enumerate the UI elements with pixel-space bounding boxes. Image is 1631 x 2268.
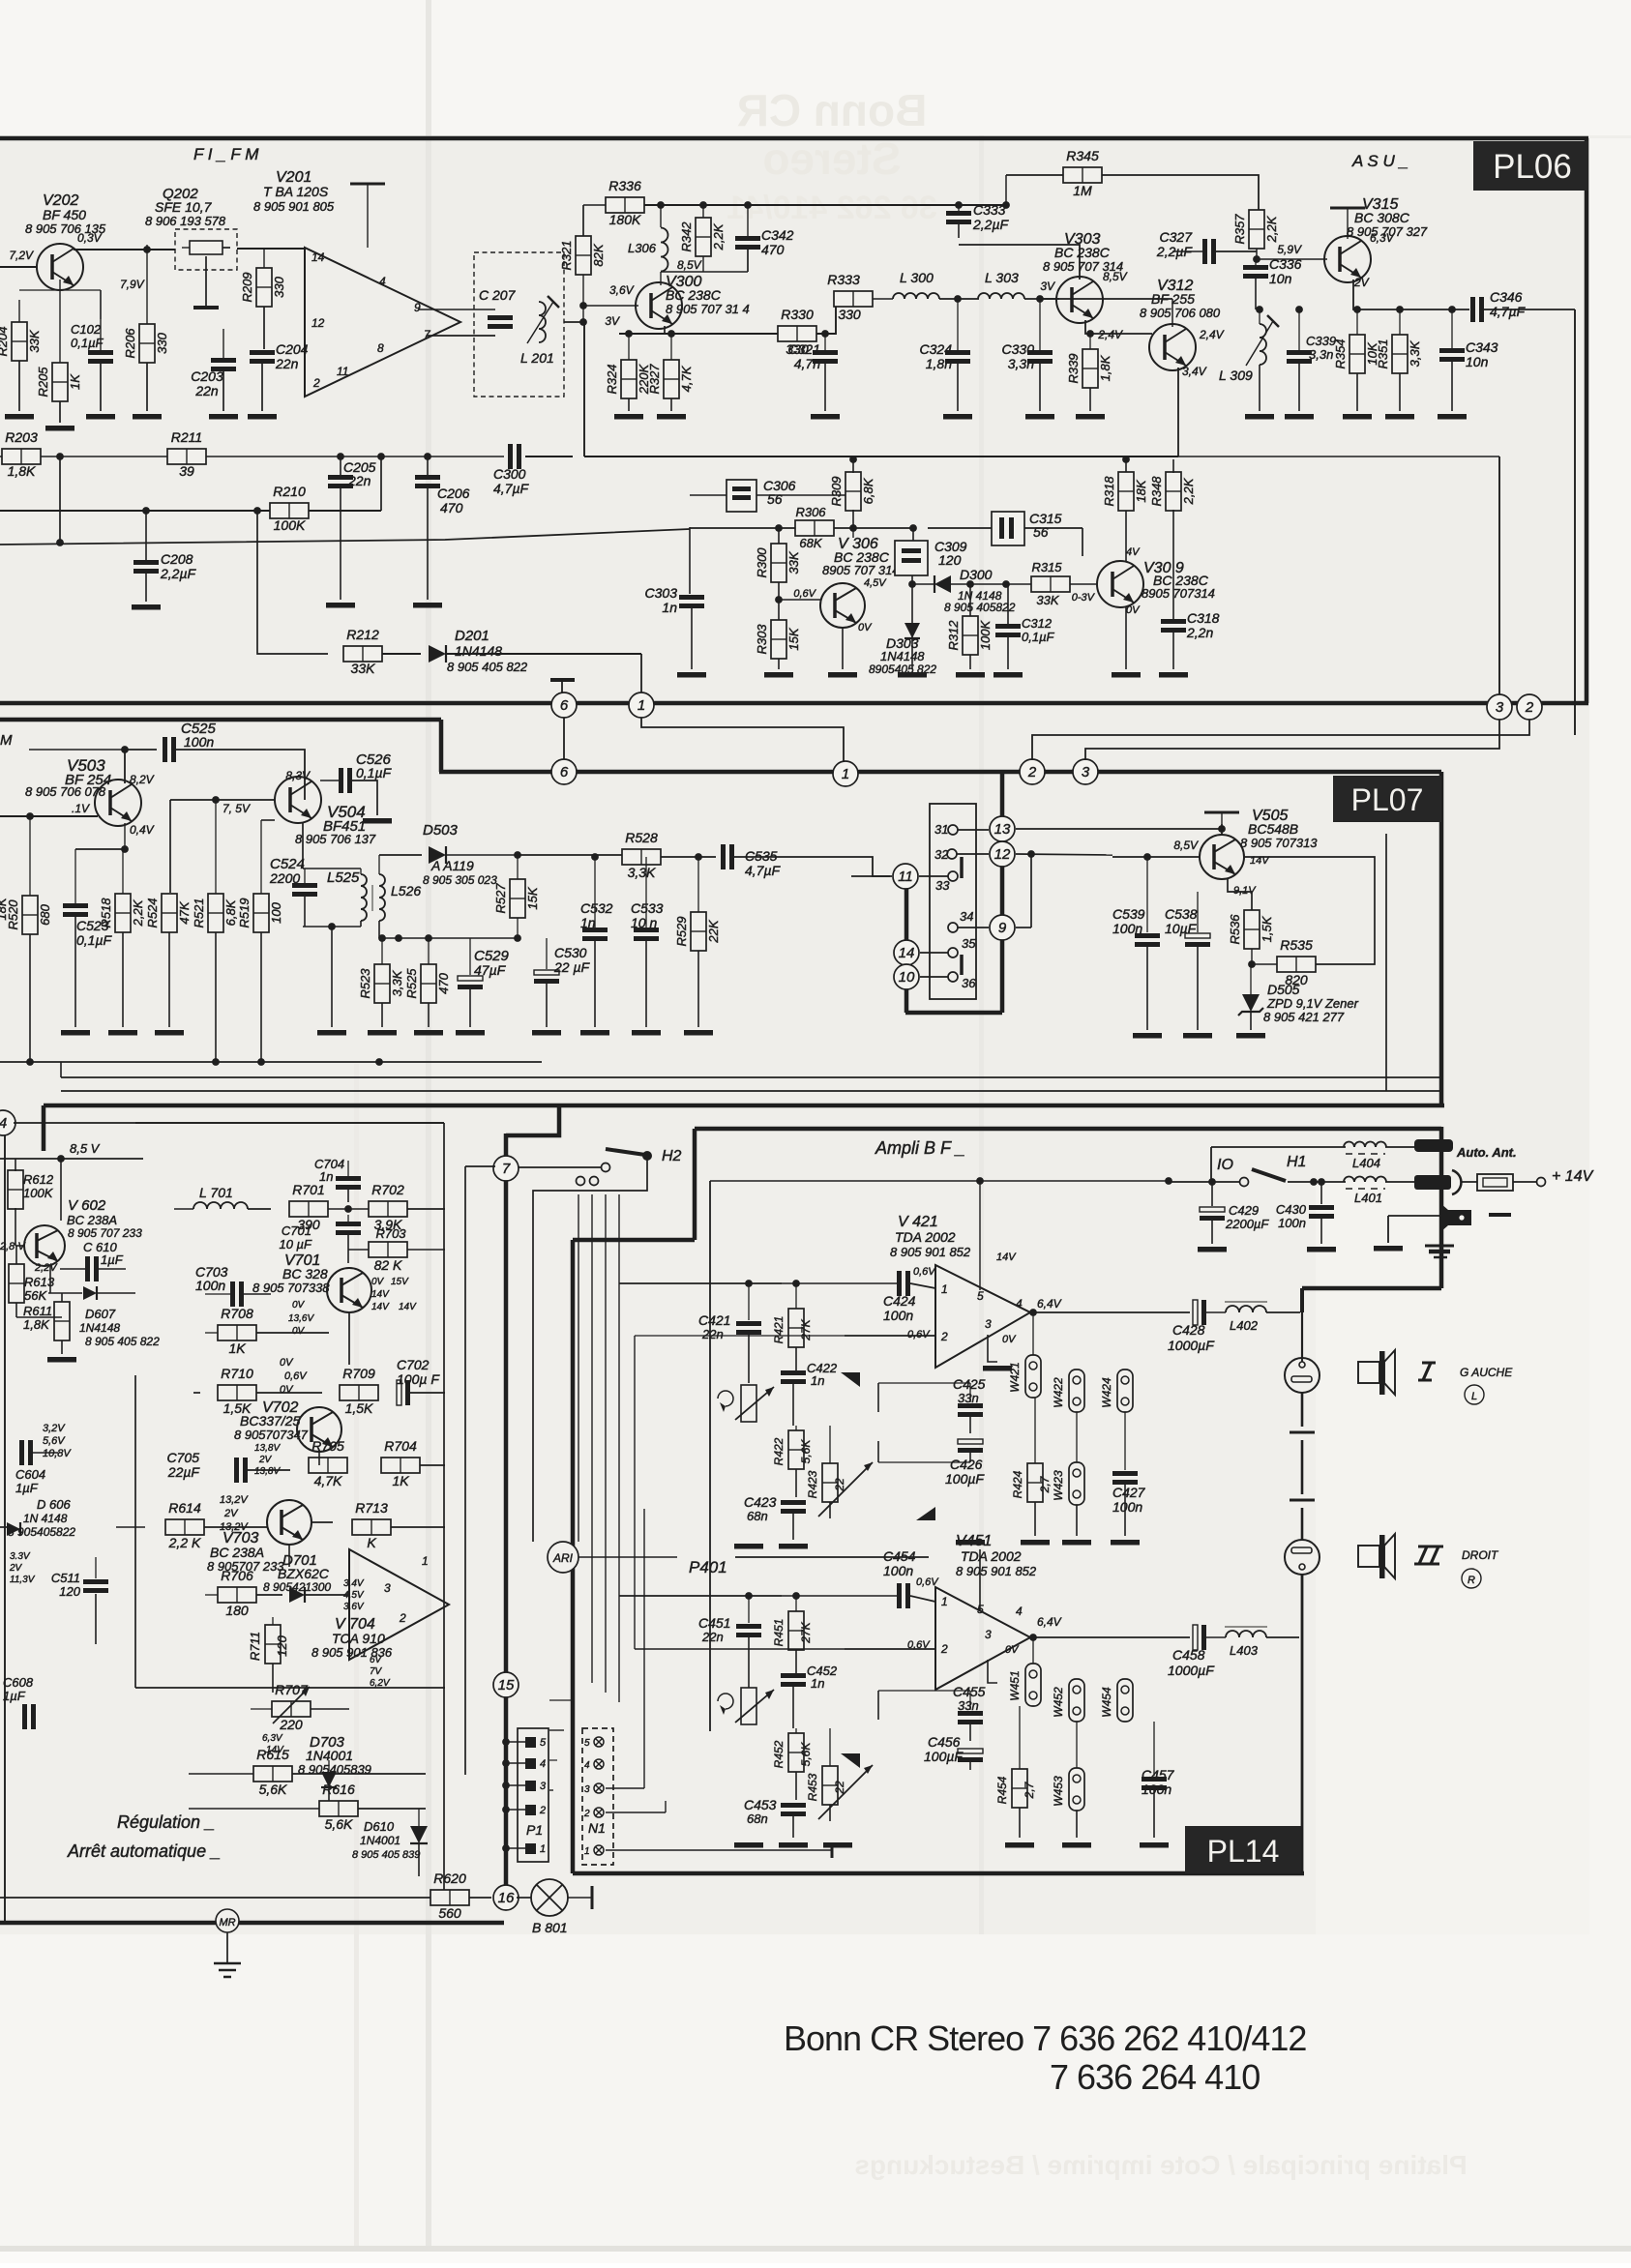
svg-text:C538: C538 — [1165, 906, 1198, 922]
svg-text:330: 330 — [155, 332, 169, 353]
svg-text:1: 1 — [540, 1843, 546, 1855]
svg-text:2,7: 2,7 — [1038, 1475, 1052, 1493]
svg-text:33n: 33n — [958, 1391, 979, 1405]
svg-text:C330: C330 — [1002, 341, 1035, 357]
svg-text:R204: R204 — [0, 326, 10, 356]
svg-text:1,8K: 1,8K — [23, 1317, 50, 1332]
svg-text:R536: R536 — [1228, 914, 1242, 945]
svg-text:C208: C208 — [161, 551, 193, 567]
svg-text:0V: 0V — [292, 1300, 306, 1311]
svg-text:33K: 33K — [27, 329, 42, 352]
svg-text:IO: IO — [1217, 1157, 1233, 1173]
svg-text:2: 2 — [940, 1330, 948, 1343]
svg-text:9,1V: 9,1V — [1233, 885, 1257, 897]
svg-text:0,6V: 0,6V — [793, 588, 816, 600]
svg-text:12: 12 — [994, 846, 1011, 863]
svg-text:R315: R315 — [1031, 560, 1062, 574]
svg-text:DROIT: DROIT — [1462, 1548, 1499, 1562]
svg-text:14V: 14V — [371, 1289, 390, 1300]
svg-text:2V: 2V — [223, 1508, 239, 1519]
svg-text:2: 2 — [399, 1611, 406, 1625]
svg-text:C206: C206 — [437, 486, 470, 501]
svg-text:2,2 K: 2,2 K — [168, 1535, 201, 1550]
svg-text:V 602: V 602 — [68, 1197, 106, 1214]
svg-text:13,8V: 13,8V — [254, 1443, 281, 1454]
svg-text:D503: D503 — [423, 822, 459, 839]
svg-text:1N4148: 1N4148 — [880, 649, 925, 663]
svg-text:2V: 2V — [1353, 276, 1370, 289]
svg-text:W452: W452 — [1052, 1687, 1065, 1718]
svg-text:C324: C324 — [920, 341, 953, 357]
svg-text:100n: 100n — [1142, 1782, 1171, 1797]
svg-text:BC 238A: BC 238A — [67, 1213, 117, 1227]
svg-text:R524: R524 — [145, 898, 160, 928]
svg-text:C343: C343 — [1466, 339, 1498, 355]
svg-text:3.3V: 3.3V — [10, 1551, 31, 1562]
svg-text:4,5V: 4,5V — [864, 577, 887, 589]
svg-text:0,6V: 0,6V — [284, 1370, 308, 1382]
svg-text:0V: 0V — [1002, 1334, 1017, 1345]
svg-text:9: 9 — [998, 920, 1007, 936]
svg-text:1,8K: 1,8K — [1098, 354, 1112, 381]
svg-text:6,4V: 6,4V — [1037, 1297, 1062, 1311]
svg-text:100: 100 — [269, 901, 283, 923]
svg-text:15V: 15V — [391, 1277, 409, 1287]
svg-text:0,4V: 0,4V — [130, 823, 155, 837]
svg-text:15K: 15K — [525, 886, 540, 909]
svg-text:C454: C454 — [883, 1548, 916, 1564]
svg-text:L306: L306 — [628, 241, 657, 255]
svg-text:3,3K: 3,3K — [628, 865, 656, 880]
svg-text:C321: C321 — [788, 341, 820, 357]
svg-text:R312: R312 — [946, 620, 961, 651]
svg-text:4,7µF: 4,7µF — [1490, 304, 1527, 319]
svg-text:6,8K: 6,8K — [861, 477, 875, 504]
svg-text:3,3K: 3,3K — [390, 969, 404, 996]
svg-text:W454: W454 — [1100, 1687, 1113, 1718]
svg-text:0,6V: 0,6V — [916, 1576, 939, 1588]
svg-text:1n: 1n — [319, 1169, 333, 1184]
svg-text:18K: 18K — [1134, 479, 1148, 502]
svg-text:68n: 68n — [747, 1811, 768, 1826]
svg-text:R453: R453 — [806, 1773, 819, 1801]
svg-text:V 421: V 421 — [898, 1214, 938, 1230]
svg-text:P1: P1 — [526, 1822, 543, 1838]
svg-text:R527: R527 — [493, 883, 508, 914]
svg-text:180K: 180K — [609, 212, 641, 227]
svg-text:56: 56 — [767, 491, 783, 507]
svg-text:H1: H1 — [1287, 1154, 1306, 1170]
svg-text:4,7µF: 4,7µF — [745, 863, 782, 878]
svg-text:4,7µF: 4,7µF — [493, 481, 530, 496]
svg-text:Bonn CR Stereo 7 636 262 410/4: Bonn CR Stereo 7 636 262 410/412 — [784, 2018, 1306, 2058]
svg-text:6,3V: 6,3V — [1370, 231, 1395, 245]
svg-text:C421: C421 — [698, 1312, 730, 1328]
svg-text:1: 1 — [842, 766, 849, 782]
svg-text:3,3n: 3,3n — [1309, 347, 1333, 362]
svg-text:68K: 68K — [799, 536, 822, 550]
svg-text:C426: C426 — [950, 1457, 983, 1472]
svg-text:5: 5 — [540, 1737, 547, 1749]
svg-text:1,8n: 1,8n — [926, 356, 952, 371]
svg-text:R454: R454 — [995, 1776, 1009, 1804]
svg-text:R209: R209 — [240, 272, 254, 302]
svg-text:100n: 100n — [195, 1278, 225, 1293]
svg-text:Auto. Ant.: Auto. Ant. — [1456, 1145, 1517, 1160]
svg-text:H2: H2 — [662, 1148, 682, 1164]
svg-text:+ 14V: + 14V — [1552, 1168, 1594, 1185]
svg-text:14V: 14V — [996, 1252, 1017, 1263]
svg-text:6: 6 — [560, 764, 569, 781]
svg-text:6,3V: 6,3V — [262, 1733, 283, 1744]
svg-text:0,6V: 0,6V — [907, 1329, 931, 1340]
svg-text:8 905405822: 8 905405822 — [8, 1525, 75, 1539]
svg-text:100n: 100n — [1112, 921, 1142, 936]
svg-text:5,6K: 5,6K — [799, 1439, 813, 1464]
svg-text:C453: C453 — [744, 1797, 777, 1812]
svg-text:1N4148: 1N4148 — [455, 643, 502, 659]
svg-text:4: 4 — [379, 275, 386, 288]
svg-text:C342: C342 — [761, 227, 794, 243]
svg-text:C203: C203 — [191, 368, 223, 384]
svg-text:100K: 100K — [978, 619, 993, 650]
svg-text:100n: 100n — [883, 1308, 913, 1323]
svg-text:R321: R321 — [559, 240, 574, 270]
svg-text:C701: C701 — [282, 1223, 311, 1238]
svg-text:22µF: 22µF — [167, 1464, 201, 1480]
svg-text:C530: C530 — [554, 945, 587, 960]
svg-text:A S U _: A S U _ — [1351, 152, 1409, 170]
svg-text:R351: R351 — [1376, 339, 1390, 368]
svg-text:2: 2 — [539, 1805, 546, 1816]
svg-text:22n: 22n — [701, 1327, 724, 1341]
svg-text:2,4V: 2,4V — [1097, 328, 1123, 341]
svg-text:R357: R357 — [1232, 214, 1247, 245]
svg-text:0V: 0V — [1005, 1644, 1020, 1656]
svg-text:33K: 33K — [786, 550, 801, 574]
svg-text:R211: R211 — [171, 429, 202, 445]
svg-text:32: 32 — [934, 847, 949, 862]
svg-text:PL06: PL06 — [1493, 148, 1572, 186]
svg-text:8 905 405 822: 8 905 405 822 — [85, 1335, 160, 1348]
svg-text:R451: R451 — [772, 1619, 786, 1647]
svg-text:Platine principale / Cote impr: Platine principale / Cote imprime / Best… — [854, 2150, 1467, 2180]
svg-text:0V: 0V — [280, 1384, 294, 1396]
svg-text:V451: V451 — [956, 1533, 992, 1549]
svg-text:8,5V: 8,5V — [1173, 839, 1199, 852]
svg-text:3,6V: 3,6V — [343, 1602, 365, 1612]
svg-text:8 905 901 805: 8 905 901 805 — [253, 199, 335, 214]
svg-text:2: 2 — [1027, 764, 1037, 781]
svg-text:8 905 405 839: 8 905 405 839 — [352, 1849, 420, 1861]
svg-text:R612: R612 — [23, 1172, 54, 1187]
svg-text:PL07: PL07 — [1351, 782, 1424, 817]
svg-text:2: 2 — [940, 1642, 948, 1656]
svg-text:82 K: 82 K — [374, 1257, 402, 1273]
svg-text:100µF: 100µF — [945, 1471, 985, 1487]
svg-text:BZX62C: BZX62C — [278, 1566, 330, 1581]
svg-text:R342: R342 — [679, 221, 694, 252]
svg-text:R611: R611 — [23, 1304, 52, 1318]
svg-text:L404: L404 — [1352, 1156, 1380, 1170]
svg-text:47µF: 47µF — [474, 962, 507, 978]
svg-text:8 905 421 277: 8 905 421 277 — [1263, 1010, 1345, 1024]
svg-text:8 905 305 023: 8 905 305 023 — [423, 873, 497, 887]
svg-text:1,8K: 1,8K — [8, 463, 36, 479]
svg-text:R421: R421 — [772, 1316, 786, 1344]
svg-text:1n: 1n — [662, 600, 677, 615]
svg-text:82K: 82K — [591, 243, 606, 266]
svg-text:14V: 14V — [399, 1302, 417, 1312]
svg-text:33n: 33n — [958, 1698, 979, 1713]
svg-text:L526: L526 — [391, 883, 421, 898]
svg-text:2: 2 — [583, 1809, 590, 1819]
svg-text:R306: R306 — [795, 505, 826, 519]
svg-text:R521: R521 — [192, 898, 206, 928]
svg-text:C429: C429 — [1229, 1203, 1259, 1218]
svg-text:3: 3 — [985, 1317, 992, 1331]
svg-text:MR: MR — [219, 1917, 235, 1929]
svg-text:13,6V: 13,6V — [288, 1313, 314, 1324]
svg-text:PL14: PL14 — [1207, 1834, 1280, 1869]
svg-text:3V: 3V — [1040, 280, 1055, 293]
svg-text:C702: C702 — [397, 1357, 430, 1372]
svg-text:R616: R616 — [322, 1782, 355, 1797]
svg-text:330: 330 — [272, 276, 286, 297]
svg-text:3: 3 — [540, 1781, 547, 1792]
svg-text:R354: R354 — [1333, 339, 1348, 368]
svg-text:R704: R704 — [384, 1438, 417, 1454]
svg-text:1µF: 1µF — [101, 1252, 124, 1267]
svg-text:47K: 47K — [177, 900, 192, 924]
svg-text:2,2K: 2,2K — [131, 898, 145, 927]
svg-text:14: 14 — [311, 250, 325, 264]
svg-text:0,3V: 0,3V — [77, 231, 103, 245]
svg-text:22 µF: 22 µF — [553, 959, 591, 975]
svg-text:3,2V: 3,2V — [43, 1423, 66, 1434]
svg-text:BF 450: BF 450 — [43, 207, 86, 222]
svg-text:16: 16 — [498, 1890, 515, 1906]
svg-text:18K: 18K — [0, 897, 9, 920]
svg-text:7V: 7V — [370, 1666, 383, 1677]
svg-text:1n: 1n — [580, 915, 596, 930]
svg-text:3: 3 — [584, 1784, 590, 1795]
svg-text:2V: 2V — [258, 1455, 273, 1465]
svg-text:8 905421300: 8 905421300 — [263, 1580, 331, 1594]
svg-text:7 636 264 410: 7 636 264 410 — [1050, 2057, 1260, 2097]
svg-text:8,2V: 8,2V — [130, 773, 155, 786]
svg-text:A A119: A A119 — [430, 858, 474, 873]
svg-text:C336: C336 — [1269, 256, 1302, 272]
svg-text:35: 35 — [962, 936, 976, 951]
svg-text:100K: 100K — [23, 1186, 54, 1200]
svg-text:BC 238C: BC 238C — [1054, 245, 1111, 260]
svg-text:SFE 10,7: SFE 10,7 — [155, 199, 213, 215]
svg-text:120: 120 — [275, 1635, 289, 1656]
svg-text:Bonn CR: Bonn CR — [737, 85, 928, 135]
svg-text:5: 5 — [977, 1289, 984, 1303]
svg-text:TCA 910: TCA 910 — [332, 1631, 385, 1646]
svg-text:2200µF: 2200µF — [1225, 1217, 1269, 1231]
svg-text:BC 238C: BC 238C — [666, 287, 722, 303]
svg-text:R518: R518 — [99, 898, 113, 928]
svg-text:8,5V: 8,5V — [677, 258, 702, 272]
svg-text:2V: 2V — [9, 1563, 23, 1574]
svg-text:T BA 120S: T BA 120S — [263, 184, 329, 199]
svg-text:11: 11 — [898, 869, 913, 885]
svg-text:R703: R703 — [375, 1226, 406, 1241]
svg-text:1n: 1n — [811, 1373, 824, 1388]
svg-text:R422: R422 — [772, 1437, 786, 1465]
svg-text:1,5K: 1,5K — [223, 1400, 252, 1416]
svg-text:L403: L403 — [1230, 1643, 1259, 1658]
svg-text:6,8K: 6,8K — [223, 898, 238, 926]
svg-text:R711: R711 — [248, 1632, 262, 1661]
svg-text:R345: R345 — [1066, 148, 1099, 163]
svg-text:W451: W451 — [1008, 1670, 1022, 1700]
svg-text:10,8V: 10,8V — [43, 1448, 72, 1459]
svg-text:C204: C204 — [276, 341, 309, 357]
svg-text:B 801: B 801 — [532, 1920, 568, 1935]
svg-text:R701: R701 — [292, 1182, 324, 1197]
svg-text:14V: 14V — [371, 1302, 390, 1312]
svg-text:C451: C451 — [698, 1615, 730, 1631]
svg-text:7: 7 — [502, 1161, 511, 1177]
svg-text:8 905 707 31 4: 8 905 707 31 4 — [666, 302, 750, 316]
svg-text:R324: R324 — [605, 364, 619, 394]
svg-text:10n: 10n — [1269, 271, 1292, 286]
svg-text:1N4148: 1N4148 — [79, 1321, 120, 1335]
svg-text:22n: 22n — [347, 473, 371, 488]
svg-text:R525: R525 — [404, 968, 419, 999]
svg-text:R708: R708 — [221, 1306, 253, 1321]
svg-text:R713: R713 — [355, 1500, 388, 1516]
svg-text:10 n: 10 n — [631, 915, 657, 930]
svg-text:8: 8 — [377, 341, 384, 355]
svg-text:100µF: 100µF — [924, 1749, 964, 1764]
svg-text:R702: R702 — [371, 1182, 404, 1197]
svg-text:D 606: D 606 — [37, 1497, 71, 1512]
svg-text:C608: C608 — [3, 1675, 34, 1690]
svg-text:Arrêt automatique _: Arrêt automatique _ — [67, 1841, 221, 1861]
svg-text:3V: 3V — [605, 314, 620, 328]
svg-text:R528: R528 — [625, 830, 658, 845]
svg-text:0,1µF: 0,1µF — [71, 336, 104, 350]
svg-text:3,6V: 3,6V — [609, 283, 635, 297]
svg-text:1K: 1K — [228, 1340, 246, 1356]
svg-text:Stereo: Stereo — [762, 133, 901, 184]
svg-text:TDA 2002: TDA 2002 — [895, 1229, 956, 1245]
svg-text:12: 12 — [311, 316, 325, 330]
svg-text:33K: 33K — [351, 661, 376, 676]
svg-text:7, 5V: 7, 5V — [222, 802, 251, 815]
svg-text:R327: R327 — [647, 364, 662, 395]
svg-text:L: L — [1471, 1391, 1477, 1402]
svg-text:C457: C457 — [1142, 1767, 1175, 1782]
svg-text:W421: W421 — [1008, 1362, 1022, 1392]
svg-text:BC 238A: BC 238A — [210, 1545, 264, 1560]
svg-text:D505: D505 — [1267, 982, 1300, 997]
svg-text:C318: C318 — [1187, 610, 1220, 626]
svg-text:L 701: L 701 — [199, 1185, 233, 1200]
svg-text:0,6V: 0,6V — [913, 1266, 936, 1278]
svg-text:R613: R613 — [24, 1275, 55, 1289]
svg-text:R705: R705 — [311, 1438, 344, 1454]
svg-text:8905 707314: 8905 707314 — [1142, 586, 1215, 601]
svg-text:3,4V: 3,4V — [1182, 365, 1207, 378]
svg-text:4: 4 — [1016, 1605, 1023, 1618]
svg-text:330: 330 — [838, 307, 861, 322]
svg-text:0V: 0V — [371, 1277, 385, 1287]
svg-text:2200: 2200 — [269, 870, 300, 886]
svg-text:R318: R318 — [1102, 476, 1116, 507]
svg-text:F I _ F M: F I _ F M — [193, 145, 259, 163]
svg-text:2,2V: 2,2V — [34, 1262, 58, 1274]
svg-text:D300: D300 — [960, 567, 993, 582]
svg-text:Régulation _: Régulation _ — [117, 1812, 215, 1832]
svg-text:180: 180 — [225, 1603, 249, 1618]
svg-text:R205: R205 — [36, 367, 50, 398]
svg-text:11: 11 — [337, 365, 348, 378]
svg-text:6: 6 — [560, 697, 569, 714]
svg-text:C346: C346 — [1490, 289, 1523, 305]
svg-text:C312: C312 — [1022, 616, 1053, 631]
svg-text:L 201: L 201 — [520, 350, 554, 366]
svg-text:BC548B: BC548B — [1248, 821, 1298, 837]
svg-text:2,2K: 2,2K — [1181, 477, 1196, 505]
svg-text:8905 707 314: 8905 707 314 — [822, 563, 900, 577]
svg-text:560: 560 — [438, 1905, 461, 1921]
svg-text:56: 56 — [1033, 524, 1049, 540]
svg-text:8 905 901 852: 8 905 901 852 — [890, 1245, 971, 1259]
svg-text:1,5K: 1,5K — [1260, 915, 1274, 942]
svg-text:22K: 22K — [706, 919, 721, 943]
svg-text:R424: R424 — [1011, 1470, 1024, 1498]
svg-text:R519: R519 — [237, 898, 252, 928]
svg-text:4: 4 — [584, 1760, 590, 1771]
svg-text:1M: 1M — [1073, 183, 1092, 198]
svg-text:470: 470 — [440, 500, 463, 515]
svg-text:R348: R348 — [1149, 476, 1164, 507]
svg-text:C423: C423 — [744, 1494, 777, 1510]
svg-text:L 303: L 303 — [985, 270, 1019, 285]
svg-text:R: R — [1468, 1575, 1475, 1586]
svg-text:56K: 56K — [24, 1288, 47, 1303]
svg-text:6V: 6V — [370, 1655, 383, 1665]
svg-text:22n: 22n — [275, 356, 299, 371]
svg-text:TDA 2002: TDA 2002 — [961, 1548, 1022, 1564]
svg-text:8,5 V: 8,5 V — [70, 1141, 101, 1156]
svg-text:27K: 27K — [799, 1318, 813, 1340]
svg-text:1n: 1n — [811, 1676, 824, 1691]
svg-text:11,3V: 11,3V — [10, 1575, 36, 1585]
svg-text:R210: R210 — [273, 484, 306, 499]
svg-text:1: 1 — [941, 1282, 948, 1296]
svg-text:1K: 1K — [68, 373, 82, 390]
svg-text:5,6K: 5,6K — [799, 1742, 813, 1767]
svg-text:5,6K: 5,6K — [259, 1782, 287, 1797]
svg-text:R529: R529 — [674, 916, 689, 946]
svg-text:C456: C456 — [928, 1734, 961, 1750]
svg-text:L401: L401 — [1354, 1191, 1382, 1205]
svg-text:N1: N1 — [588, 1820, 606, 1836]
svg-text:1: 1 — [638, 697, 645, 714]
svg-text:5,6K: 5,6K — [325, 1816, 353, 1832]
svg-text:2: 2 — [1525, 699, 1534, 716]
svg-text:1,5K: 1,5K — [345, 1400, 373, 1416]
svg-text:R300: R300 — [755, 547, 769, 578]
svg-text:9: 9 — [414, 301, 421, 314]
